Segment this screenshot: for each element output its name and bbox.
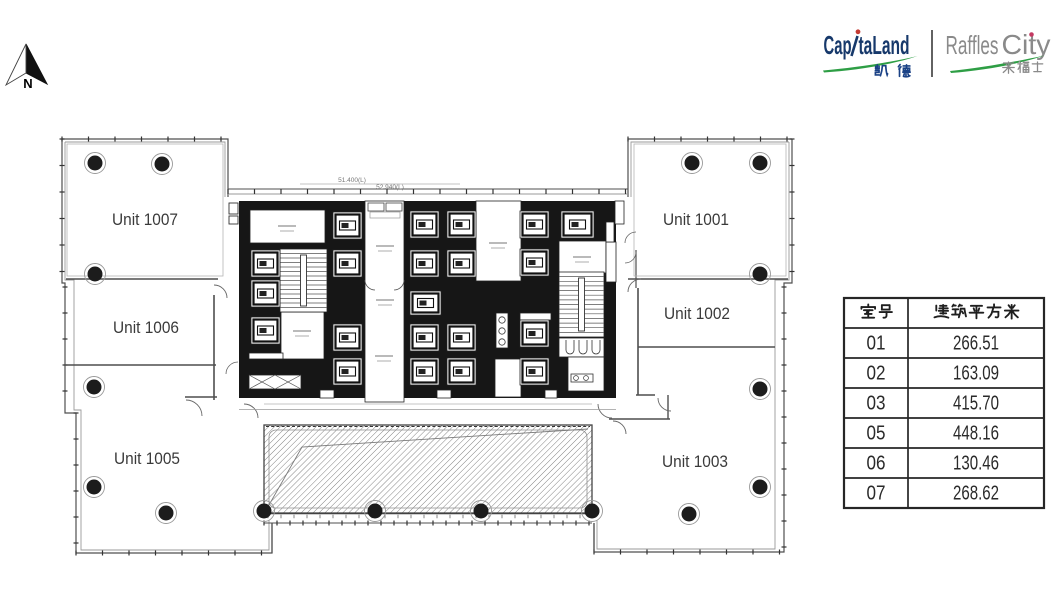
- svg-text:268.62: 268.62: [953, 483, 999, 505]
- svg-text:N: N: [23, 76, 32, 91]
- svg-text:01: 01: [867, 333, 886, 355]
- svg-text:448.16: 448.16: [953, 423, 999, 445]
- svg-text:Unit 1007: Unit 1007: [112, 210, 178, 229]
- svg-text:06: 06: [867, 453, 886, 475]
- svg-text:266.51: 266.51: [953, 333, 999, 355]
- svg-text:130.46: 130.46: [953, 453, 999, 475]
- svg-text:51.400(L): 51.400(L): [338, 177, 366, 184]
- svg-text:52.940(L): 52.940(L): [376, 184, 404, 191]
- svg-text:taLand: taLand: [859, 30, 910, 60]
- svg-text:02: 02: [867, 363, 886, 385]
- svg-text:Unit 1006: Unit 1006: [113, 318, 179, 337]
- svg-text:Unit 1002: Unit 1002: [664, 304, 730, 323]
- svg-text:03: 03: [867, 393, 886, 415]
- svg-text:163.09: 163.09: [953, 363, 999, 385]
- svg-text:Cap: Cap: [824, 30, 852, 60]
- svg-text:Unit 1003: Unit 1003: [662, 452, 728, 471]
- svg-text:415.70: 415.70: [953, 393, 999, 415]
- svg-text:05: 05: [867, 423, 886, 445]
- svg-text:City: City: [1002, 29, 1051, 60]
- svg-text:Unit 1001: Unit 1001: [663, 210, 729, 229]
- svg-text:07: 07: [867, 483, 886, 505]
- svg-text:Unit 1005: Unit 1005: [114, 449, 180, 468]
- svg-text:Raffles: Raffles: [946, 30, 999, 60]
